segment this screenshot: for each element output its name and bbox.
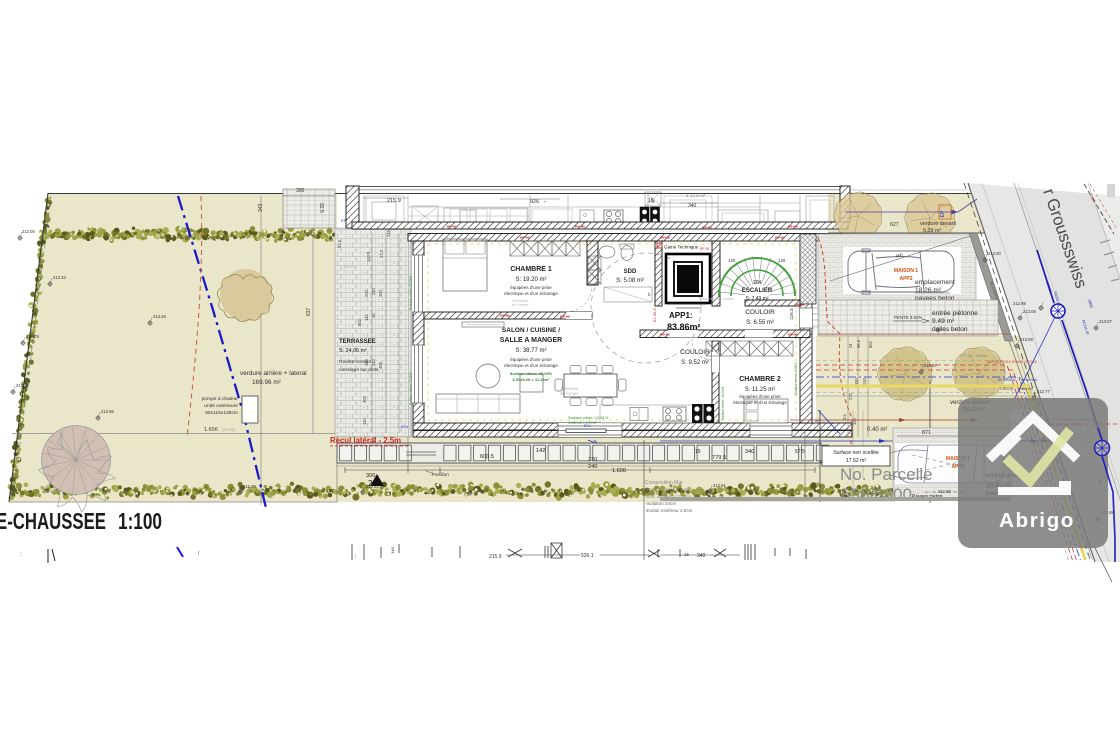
svg-text:S: 5.08 m²: S: 5.08 m² xyxy=(616,278,644,284)
svg-text:240: 240 xyxy=(371,287,376,295)
svg-text:CREOS - Strom NS: CREOS - Strom NS xyxy=(1000,387,1034,391)
svg-text:-Enduit extérieur 2.0cm: -Enduit extérieur 2.0cm xyxy=(645,487,693,492)
svg-text:212.81: 212.81 xyxy=(713,483,726,488)
svg-text:équipées d'une prise: équipées d'une prise xyxy=(739,394,781,399)
svg-text:RF 90: RF 90 xyxy=(660,236,670,240)
svg-text:213.46: 213.46 xyxy=(153,314,166,319)
svg-text:779.5: 779.5 xyxy=(712,455,726,461)
svg-text:RF 90: RF 90 xyxy=(560,315,570,319)
svg-text:CHAMBRE 2: CHAMBRE 2 xyxy=(739,376,781,383)
svg-text:verdure devant: verdure devant xyxy=(920,221,956,227)
svg-text:RF 90: RF 90 xyxy=(700,247,709,251)
svg-text:E1-30-S: E1-30-S xyxy=(653,308,657,322)
svg-text:Surface vitrée: 25.09%: Surface vitrée: 25.09% xyxy=(510,371,553,376)
svg-text:-Isolation 24cm: -Isolation 24cm xyxy=(645,501,676,506)
svg-text:de fumée: de fumée xyxy=(560,391,579,396)
svg-text:110: 110 xyxy=(362,418,367,425)
svg-text:Surface non scellée: Surface non scellée xyxy=(833,450,879,456)
svg-text:S: 9.52 m²: S: 9.52 m² xyxy=(681,360,709,366)
svg-text:15: 15 xyxy=(648,198,654,204)
svg-text:-Portillon: -Portillon xyxy=(430,472,449,478)
svg-text:MAISON 1: MAISON 1 xyxy=(894,268,918,274)
svg-text:S: 7.49 m²: S: 7.49 m² xyxy=(745,296,768,302)
svg-text:343: 343 xyxy=(258,203,264,212)
svg-text:200: 200 xyxy=(364,289,369,297)
svg-text:électrique et d'un éclairage: électrique et d'un éclairage xyxy=(504,363,558,368)
svg-text:15: 15 xyxy=(684,552,689,557)
svg-text:Gaine Technique: Gaine Technique xyxy=(664,245,699,250)
svg-text:142: 142 xyxy=(536,448,545,454)
svg-text:802: 802 xyxy=(357,318,362,326)
svg-text:E-CHAUSSEE: E-CHAUSSEE xyxy=(0,508,106,534)
svg-text:Surface vitrée: 40.9%: Surface vitrée: 40.9% xyxy=(794,363,798,395)
svg-text:212.98: 212.98 xyxy=(1013,301,1026,306)
svg-text:Recul latéral - 2.5m: Recul latéral - 2.5m xyxy=(330,436,401,445)
svg-text:637: 637 xyxy=(306,307,312,316)
svg-text:COULOIR: COULOIR xyxy=(745,309,775,316)
svg-text:126.3: 126.3 xyxy=(789,308,794,320)
svg-text:60x115x138cm: 60x115x138cm xyxy=(205,410,238,416)
svg-text:92.5: 92.5 xyxy=(318,203,324,213)
svg-text:S: 11.25 m²: S: 11.25 m² xyxy=(745,387,776,393)
svg-text:300: 300 xyxy=(378,289,383,297)
svg-text:ELTRONA - Fernsehen: ELTRONA - Fernsehen xyxy=(998,378,1037,382)
svg-text:240: 240 xyxy=(371,358,376,366)
svg-text:électrique et d'un éclairage: électrique et d'un éclairage xyxy=(733,400,787,405)
svg-text:SALON / CUISINE /: SALON / CUISINE / xyxy=(502,327,560,334)
svg-text:212.88: 212.88 xyxy=(938,489,951,494)
svg-text:de fumée: de fumée xyxy=(512,302,529,307)
svg-text:Surface vitrée: 13.61%: Surface vitrée: 13.61% xyxy=(568,415,609,420)
svg-text:250: 250 xyxy=(364,358,369,366)
svg-text:S: 38.77 m²: S: 38.77 m² xyxy=(515,348,546,354)
svg-text:RF 90: RF 90 xyxy=(788,333,798,337)
svg-text:entrée piétonne: entrée piétonne xyxy=(932,310,978,317)
svg-text:88.5: 88.5 xyxy=(856,339,861,348)
svg-text:627: 627 xyxy=(890,222,899,228)
svg-text:526.1: 526.1 xyxy=(581,553,594,559)
svg-text:120: 120 xyxy=(778,258,786,263)
svg-text:emplacement: emplacement xyxy=(915,279,955,286)
svg-text:RF 90: RF 90 xyxy=(702,226,712,230)
svg-text:SDD: SDD xyxy=(624,269,637,275)
svg-text:1.600: 1.600 xyxy=(612,468,626,474)
svg-text:148: 148 xyxy=(390,547,395,554)
svg-text:COULOIR: COULOIR xyxy=(680,349,710,356)
svg-text:330: 330 xyxy=(854,377,859,385)
svg-text:RF 90: RF 90 xyxy=(660,333,670,337)
svg-text:RF 90: RF 90 xyxy=(775,236,785,240)
svg-text:S: 6.55 m²: S: 6.55 m² xyxy=(746,320,774,326)
svg-text:No. Parcelle: No. Parcelle xyxy=(840,465,933,484)
svg-text:213.00: 213.00 xyxy=(22,229,35,234)
svg-text:3. 12,0/ m²: 3. 12,0/ m² xyxy=(686,193,706,198)
svg-text:EFe: EFe xyxy=(584,424,591,428)
svg-text:verdure arrière + lateral: verdure arrière + lateral xyxy=(240,370,307,377)
svg-text:6.00x5.28 = 11.28m²: 6.00x5.28 = 11.28m² xyxy=(512,377,550,382)
svg-text:600.5: 600.5 xyxy=(480,454,494,460)
svg-text:RF 90: RF 90 xyxy=(575,225,585,229)
svg-text:LH 0.07: LH 0.07 xyxy=(344,265,357,269)
svg-text:Surface vitrée: 20.8%: Surface vitrée: 20.8% xyxy=(409,373,413,405)
svg-text:3.5: 3.5 xyxy=(842,414,847,420)
svg-text:APP2: APP2 xyxy=(899,276,912,282)
svg-text:;: ; xyxy=(355,554,356,560)
svg-text:83.86m²: 83.86m² xyxy=(667,322,701,332)
svg-text:212.87: 212.87 xyxy=(924,363,937,368)
svg-text:213.33: 213.33 xyxy=(53,275,66,280)
svg-text:9.49 m²: 9.49 m² xyxy=(932,318,955,325)
svg-text:RF 90: RF 90 xyxy=(520,236,530,240)
svg-text:213.08: 213.08 xyxy=(1020,337,1033,342)
svg-text:212.86: 212.86 xyxy=(101,409,114,414)
svg-text:TERRASSEE: TERRASSEE xyxy=(339,339,376,345)
svg-text:100: 100 xyxy=(852,417,857,425)
svg-text:340: 340 xyxy=(745,449,754,455)
svg-text:169.96 m²: 169.96 m² xyxy=(252,379,281,386)
svg-text:1.606: 1.606 xyxy=(204,427,218,433)
svg-text:dalles beton: dalles beton xyxy=(932,326,968,333)
svg-text:SALLE A MANGER: SALLE A MANGER xyxy=(500,337,562,344)
svg-text:carrelage sur plots: carrelage sur plots xyxy=(339,367,379,373)
svg-text:APP1:: APP1: xyxy=(669,311,693,320)
svg-text:EFe: EFe xyxy=(401,425,408,429)
svg-text:unité extérieure: unité extérieure xyxy=(204,403,238,409)
svg-text:871: 871 xyxy=(922,430,931,436)
svg-text:51.5: 51.5 xyxy=(337,239,342,248)
svg-text:équipées d'une prise: équipées d'une prise xyxy=(510,357,552,362)
svg-text:142: 142 xyxy=(364,313,369,321)
svg-text:230: 230 xyxy=(862,377,867,385)
svg-text:300: 300 xyxy=(362,395,367,403)
svg-text:340: 340 xyxy=(697,553,706,559)
svg-text:5?.5: 5?.5 xyxy=(795,449,805,455)
svg-text:-Enduit extérieur 2.0cm: -Enduit extérieur 2.0cm xyxy=(645,508,693,513)
svg-text:213.07: 213.07 xyxy=(1099,319,1112,324)
svg-text:Abrigo: Abrigo xyxy=(999,510,1075,532)
svg-text:120: 120 xyxy=(728,258,736,263)
svg-text:S: 24.06 m²: S: 24.06 m² xyxy=(339,348,367,354)
svg-text:15: 15 xyxy=(371,313,376,318)
svg-text:215.9: 215.9 xyxy=(387,198,401,204)
svg-text:0.40 m²: 0.40 m² xyxy=(867,427,887,433)
svg-text:212.77: 212.77 xyxy=(16,383,29,388)
svg-text:détecteur de fumée: détecteur de fumée xyxy=(700,296,735,301)
svg-text:Composition Mur: Composition Mur xyxy=(645,480,683,486)
svg-text:équipées d'une prise: équipées d'une prise xyxy=(510,285,552,290)
svg-text:802: 802 xyxy=(868,340,873,348)
svg-text:4.40x.40 x 4.0?m²: 4.40x.40 x 4.0?m² xyxy=(568,421,598,425)
svg-text:24: 24 xyxy=(848,343,853,348)
svg-text:406: 406 xyxy=(378,361,383,369)
svg-text:Surface vitrée: 40.91%: Surface vitrée: 40.91% xyxy=(721,387,725,420)
svg-text:27.3: 27.3 xyxy=(379,249,384,258)
svg-text:240: 240 xyxy=(588,464,597,470)
svg-text:926: 926 xyxy=(530,199,539,205)
svg-text:215.9: 215.9 xyxy=(489,554,502,560)
svg-text:658/6800: 658/6800 xyxy=(841,485,912,504)
svg-text:15: 15 xyxy=(695,449,701,455)
svg-text:213.05: 213.05 xyxy=(1023,309,1036,314)
svg-text:300: 300 xyxy=(296,188,305,194)
svg-text:GAZ (E) PE110 KONSCHTGAS: GAZ (E) PE110 KONSCHTGAS xyxy=(986,360,1037,364)
svg-text:212.79: 212.79 xyxy=(243,484,256,489)
svg-text:212.77: 212.77 xyxy=(1037,389,1050,394)
svg-text:PENTE 3.62%: PENTE 3.62% xyxy=(894,315,922,320)
svg-text:220: 220 xyxy=(588,457,597,463)
svg-text:électrique et d'un éclairage: électrique et d'un éclairage xyxy=(504,291,558,296)
svg-text:EP: EP xyxy=(940,210,946,217)
svg-text:213.00: 213.00 xyxy=(988,251,1001,256)
svg-text:17.52 m²: 17.52 m² xyxy=(846,458,867,464)
svg-text:S: 19.20 m²: S: 19.20 m² xyxy=(515,277,546,283)
svg-text:RF 90: RF 90 xyxy=(447,225,457,229)
svg-text:212.79: 212.79 xyxy=(26,334,39,339)
svg-text:Surface vitrée: 25.09%: Surface vitrée: 25.09% xyxy=(409,276,413,310)
svg-text:ESCALIER: ESCALIER xyxy=(742,288,773,294)
svg-text:P+T (E) - Telefon: P+T (E) - Telefon xyxy=(960,354,987,358)
svg-text:100.9: 100.9 xyxy=(366,251,371,262)
svg-text:CHAMBRE 1: CHAMBRE 1 xyxy=(510,266,552,273)
svg-text:RF 90: RF 90 xyxy=(795,303,805,307)
svg-text:pompe à chaleur: pompe à chaleur xyxy=(202,396,239,402)
svg-text:RF 90: RF 90 xyxy=(500,314,510,318)
svg-text:104: 104 xyxy=(753,280,762,286)
svg-text:(212.93): (212.93) xyxy=(222,428,235,432)
svg-text:RF 90: RF 90 xyxy=(788,225,798,229)
svg-text:340: 340 xyxy=(688,203,697,209)
svg-text:1:100: 1:100 xyxy=(118,508,162,534)
